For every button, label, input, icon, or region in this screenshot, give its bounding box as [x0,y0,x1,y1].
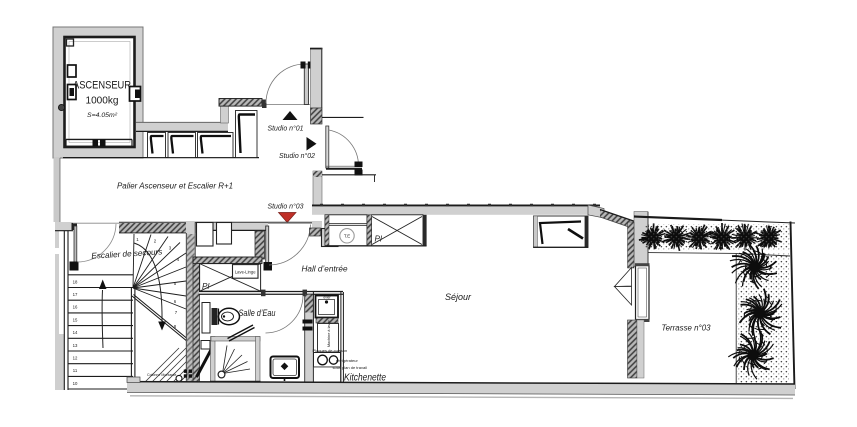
svg-text:Studio n°02: Studio n°02 [279,152,315,160]
svg-text:Pl: Pl [202,282,209,291]
svg-text:18: 18 [73,279,78,284]
svg-text:Salle d’Eau: Salle d’Eau [239,308,276,318]
svg-text:S=4.05m²: S=4.05m² [87,112,118,119]
svg-text:ASCENSEUR: ASCENSEUR [73,80,131,92]
svg-text:12: 12 [73,356,78,361]
svg-text:sous plan de travail: sous plan de travail [333,365,368,370]
svg-text:11: 11 [73,368,78,373]
svg-text:Machine à laver: Machine à laver [327,319,331,347]
svg-text:Hall d’entrée: Hall d’entrée [302,264,348,274]
svg-text:10: 10 [73,381,78,386]
svg-text:réfrigérateur: réfrigérateur [336,358,358,363]
svg-text:16: 16 [73,305,78,310]
svg-text:T.E: T.E [344,234,350,239]
svg-text:15: 15 [73,317,78,322]
svg-text:Studio n°01: Studio n°01 [268,125,304,133]
svg-text:Pl: Pl [375,235,382,244]
svg-text:1000kg: 1000kg [86,96,119,107]
svg-text:13: 13 [73,343,78,348]
svg-text:Terrasse n°03: Terrasse n°03 [662,323,711,333]
svg-text:Colonne Montante: Colonne Montante [147,373,176,377]
svg-text:14: 14 [73,330,78,335]
svg-text:Plaques de cuisson: Plaques de cuisson [313,348,348,353]
svg-text:évier: évier [323,296,331,300]
svg-text:Studio n°03: Studio n°03 [268,203,304,211]
svg-text:Lave-Linge: Lave-Linge [235,269,256,274]
svg-text:Palier Ascenseur et Escalier R: Palier Ascenseur et Escalier R+1 [117,181,233,191]
svg-text:Séjour: Séjour [445,292,472,303]
svg-text:17: 17 [73,292,78,297]
